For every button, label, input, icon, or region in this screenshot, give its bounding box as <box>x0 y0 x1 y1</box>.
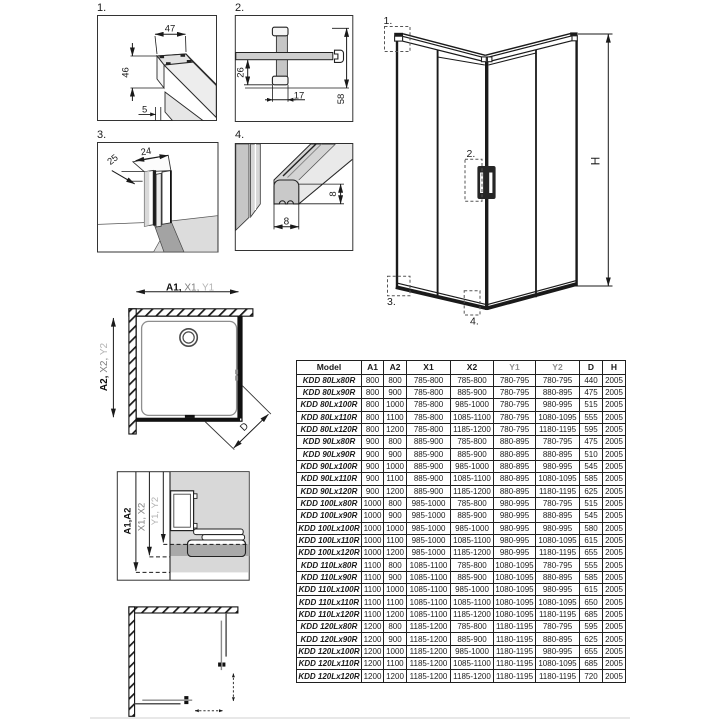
svg-text:17: 17 <box>294 90 305 101</box>
svg-text:26: 26 <box>236 67 247 78</box>
svg-text:4.: 4. <box>470 316 479 328</box>
svg-text:24: 24 <box>140 146 152 159</box>
svg-text:8: 8 <box>328 191 339 196</box>
svg-text:A2, X2, Y2: A2, X2, Y2 <box>99 342 110 391</box>
svg-text:1.: 1. <box>384 15 393 27</box>
svg-text:4.: 4. <box>235 129 244 141</box>
svg-text:H: H <box>589 157 603 166</box>
svg-text:Y1, Y2: Y1, Y2 <box>150 497 161 525</box>
svg-text:5: 5 <box>142 105 147 116</box>
svg-text:46: 46 <box>121 67 132 78</box>
svg-text:1.: 1. <box>97 2 106 14</box>
svg-text:58: 58 <box>336 94 347 105</box>
svg-text:X1, X2: X1, X2 <box>136 503 147 532</box>
svg-text:2.: 2. <box>235 2 244 14</box>
svg-text:8: 8 <box>284 217 290 228</box>
svg-text:3.: 3. <box>97 129 106 141</box>
svg-text:A1,A2: A1,A2 <box>123 508 134 535</box>
svg-text:2.: 2. <box>467 148 476 160</box>
svg-text:47: 47 <box>165 24 176 35</box>
svg-text:3.: 3. <box>387 296 396 308</box>
svg-text:D: D <box>238 421 251 434</box>
